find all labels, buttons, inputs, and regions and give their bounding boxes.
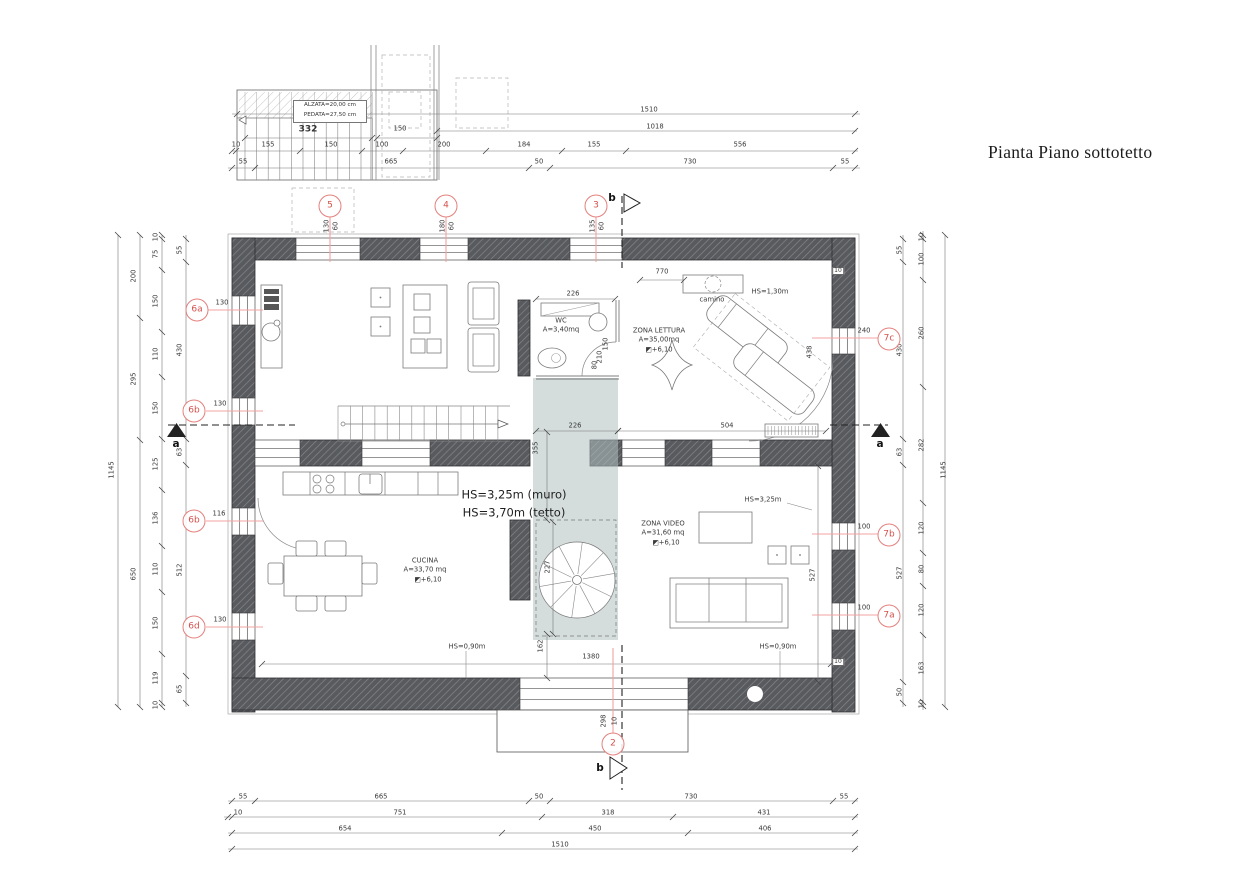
dim-right-label: 1145 (941, 461, 948, 478)
dim-top-label: 665 (385, 159, 398, 166)
dim-top-label: 730 (684, 159, 697, 166)
marker-6b: 6b (183, 400, 206, 423)
dim-top-label: 10 (232, 142, 241, 149)
dim-interior-label: 527 (810, 569, 817, 582)
dim-bottom-label: 730 (685, 794, 698, 801)
marker-7a: 7a (878, 605, 901, 628)
dim-left-label: 65 (177, 685, 184, 694)
dim-bottom-label: 665 (375, 794, 388, 801)
room-label: A=3,40mq (543, 327, 579, 334)
dim-right-label: 120 (919, 522, 926, 535)
dim-left-label: 110 (153, 563, 160, 576)
stair-detail-label: 332 (299, 126, 318, 135)
dim-interior-label: 162 (538, 640, 545, 653)
dim-right-label: 63 (897, 448, 904, 457)
dim-interior-label: 770 (656, 269, 669, 276)
dim-left-label: 650 (131, 568, 138, 581)
window-dim-label: 100 (858, 605, 871, 612)
window-dim-label: 116 (213, 511, 226, 518)
dim-top-label: 150 (325, 142, 338, 149)
dim-left-label: 1145 (109, 461, 116, 478)
dim-right-label: 163 (919, 662, 926, 675)
dim-top-label: 55 (841, 159, 850, 166)
window-dim-label: 240 (858, 328, 871, 335)
room-label: camino (700, 297, 725, 304)
dim-bottom-label: 55 (840, 794, 849, 801)
dim-left-label: 150 (153, 402, 160, 415)
dim-bottom-label: 50 (535, 794, 544, 801)
dim-interior-label: 150 (603, 338, 610, 351)
room-label: ZONA LETTURA (633, 328, 685, 335)
dim-bottom-label: 450 (589, 826, 602, 833)
room-label: A=35,00mq (639, 337, 680, 344)
marker-3: 3 (585, 195, 608, 218)
dim-left-label: 10 (153, 701, 160, 710)
note-label: HS=3,25m (muro) (461, 489, 566, 501)
marker-2: 2 (602, 733, 625, 756)
dim-left-label: 55 (177, 246, 184, 255)
dim-top-label: 1510 (640, 107, 657, 114)
note-label: HS=3,70m (tetto) (463, 507, 566, 519)
dim-right-label: 282 (919, 439, 926, 452)
dim-interior-label: 227 (545, 561, 552, 574)
dim-right-label: 50 (897, 688, 904, 697)
room-label: ◩+6,10 (414, 577, 441, 584)
dim-bottom-label: 431 (758, 810, 771, 817)
dim-right-label: 527 (897, 567, 904, 580)
window-dim-label: 10 (612, 717, 619, 726)
dim-right-label: 100 (919, 253, 926, 266)
section-label: a (172, 439, 179, 450)
dim-bottom-label: 10 (234, 810, 243, 817)
marker-7c: 7c (878, 328, 901, 351)
dim-left-label: 512 (177, 564, 184, 577)
window-dim-label: 60 (599, 222, 606, 231)
dim-bottom-label: 1510 (551, 842, 568, 849)
dim-interior-label: 504 (721, 423, 734, 430)
note-label: HS=0,90m (449, 644, 486, 651)
dim-interior-label: 226 (569, 423, 582, 430)
marker-6a: 6a (186, 299, 209, 322)
dim-right-label: 10 (919, 700, 926, 709)
note-label: HS=0,90m (760, 644, 797, 651)
window-dim-label: 130 (214, 401, 227, 408)
section-label: a (876, 439, 883, 450)
window-dim-label: 130 (214, 617, 227, 624)
marker-5: 5 (319, 195, 342, 218)
floor-plan-canvas: ALZATA=20,00 cm PEDATA=27,50 cm 15101018… (0, 0, 1257, 888)
dim-left-label: 125 (153, 458, 160, 471)
dim-interior-label: 10 (832, 658, 844, 666)
dim-bottom-label: 751 (394, 810, 407, 817)
dim-interior-label: 80 (592, 361, 599, 370)
dim-interior-label: 226 (567, 291, 580, 298)
room-label: A=33,70 mq (404, 567, 447, 574)
dim-interior-label: 355 (533, 442, 540, 455)
marker-7b: 7b (878, 524, 901, 547)
dim-top-label: 184 (518, 142, 531, 149)
dim-top-label: 155 (588, 142, 601, 149)
dim-left-label: 10 (153, 233, 160, 242)
drawing-title: Pianta Piano sottotetto (988, 142, 1152, 163)
dim-top-label: 1018 (646, 124, 663, 131)
dim-top-label: 556 (734, 142, 747, 149)
room-label: CUCINA (412, 558, 438, 565)
dim-bottom-label: 318 (602, 810, 615, 817)
dim-interior-label: 438 (807, 346, 814, 359)
dim-left-label: 119 (153, 672, 160, 685)
labels-layer: 1510101810155150100200184155556556655073… (0, 0, 1257, 888)
dim-bottom-label: 406 (759, 826, 772, 833)
dim-left-label: 75 (153, 250, 160, 259)
dim-left-label: 110 (153, 348, 160, 361)
window-dim-label: 130 (216, 300, 229, 307)
dim-left-label: 136 (153, 512, 160, 525)
window-dim-label: 135 (590, 220, 597, 233)
dim-right-label: 55 (897, 246, 904, 255)
dim-top-label: 55 (239, 159, 248, 166)
dim-right-label: 80 (919, 565, 926, 574)
marker-6b: 6b (183, 510, 206, 533)
window-dim-label: 298 (601, 715, 608, 728)
dim-bottom-label: 654 (339, 826, 352, 833)
note-label: HS=3,25m (745, 497, 782, 504)
dim-top-label: 100 (376, 142, 389, 149)
note-label: HS=1,30m (752, 289, 789, 296)
dim-top-label: 155 (262, 142, 275, 149)
dim-interior-label: 1380 (582, 654, 599, 661)
marker-6d: 6d (183, 616, 206, 639)
window-dim-label: 100 (858, 524, 871, 531)
room-label: A=31,60 mq (642, 530, 685, 537)
room-label: WC (555, 318, 566, 325)
dim-right-label: 10 (919, 233, 926, 242)
window-dim-label: 60 (449, 222, 456, 231)
stair-detail-label: 150 (394, 126, 407, 133)
window-dim-label: 60 (333, 222, 340, 231)
dim-interior-label: 10 (832, 267, 844, 275)
room-label: ◩+6,10 (652, 540, 679, 547)
room-label: ZONA VIDEO (641, 521, 684, 528)
dim-left-label: 150 (153, 617, 160, 630)
section-label: b (596, 763, 604, 774)
dim-left-label: 200 (131, 270, 138, 283)
dim-left-label: 430 (177, 344, 184, 357)
section-label: b (608, 193, 616, 204)
dim-right-label: 260 (919, 327, 926, 340)
dim-top-label: 200 (438, 142, 451, 149)
dim-bottom-label: 55 (239, 794, 248, 801)
window-dim-label: 180 (440, 220, 447, 233)
room-label: ◩+6,10 (645, 347, 672, 354)
dim-left-label: 150 (153, 295, 160, 308)
dim-right-label: 120 (919, 604, 926, 617)
dim-top-label: 50 (535, 159, 544, 166)
window-dim-label: 130 (324, 220, 331, 233)
marker-4: 4 (435, 195, 458, 218)
dim-left-label: 295 (131, 373, 138, 386)
